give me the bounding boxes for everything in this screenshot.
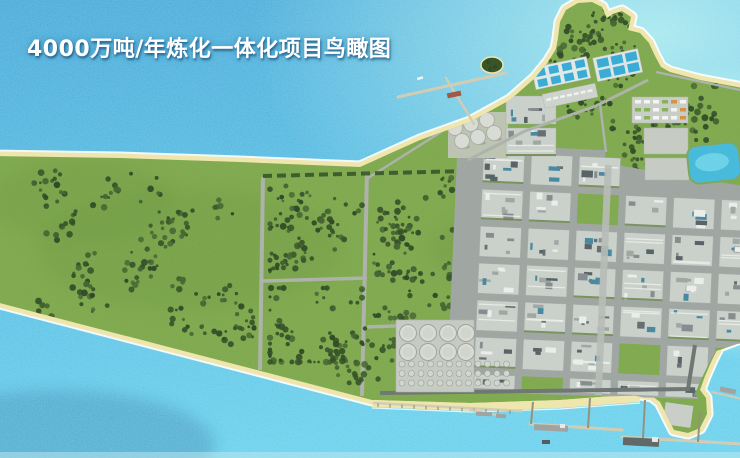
global-texture <box>0 0 740 458</box>
project-title: 4000万吨/年炼化一体化项目鸟瞰图 <box>27 31 391 63</box>
bottom-edge-haze <box>0 452 740 458</box>
project-birdseye-scene <box>0 0 740 458</box>
aerial-rendering-stage: 4000万吨/年炼化一体化项目鸟瞰图 <box>0 0 740 458</box>
